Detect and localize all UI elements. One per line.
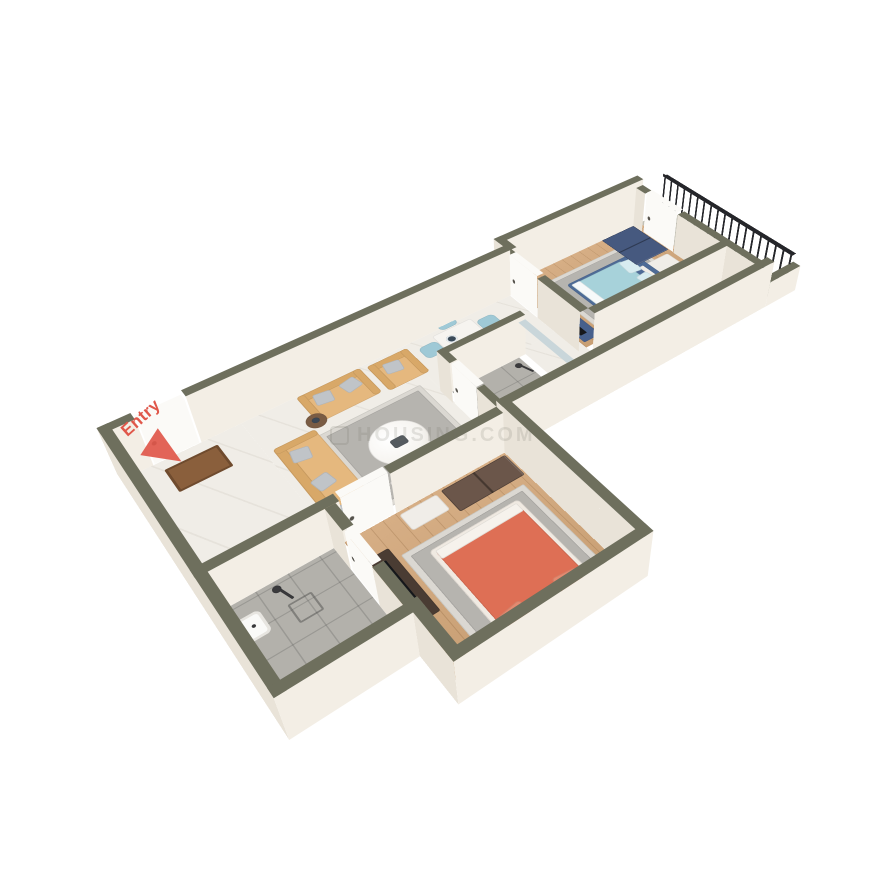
watermark: HOUSING.COM bbox=[330, 424, 536, 447]
watermark-text: HOUSING.COM bbox=[357, 424, 536, 447]
watermark-logo-icon bbox=[330, 426, 349, 445]
floorplan-render: { "labels": { "entry": "Entry", "waterma… bbox=[0, 0, 870, 870]
